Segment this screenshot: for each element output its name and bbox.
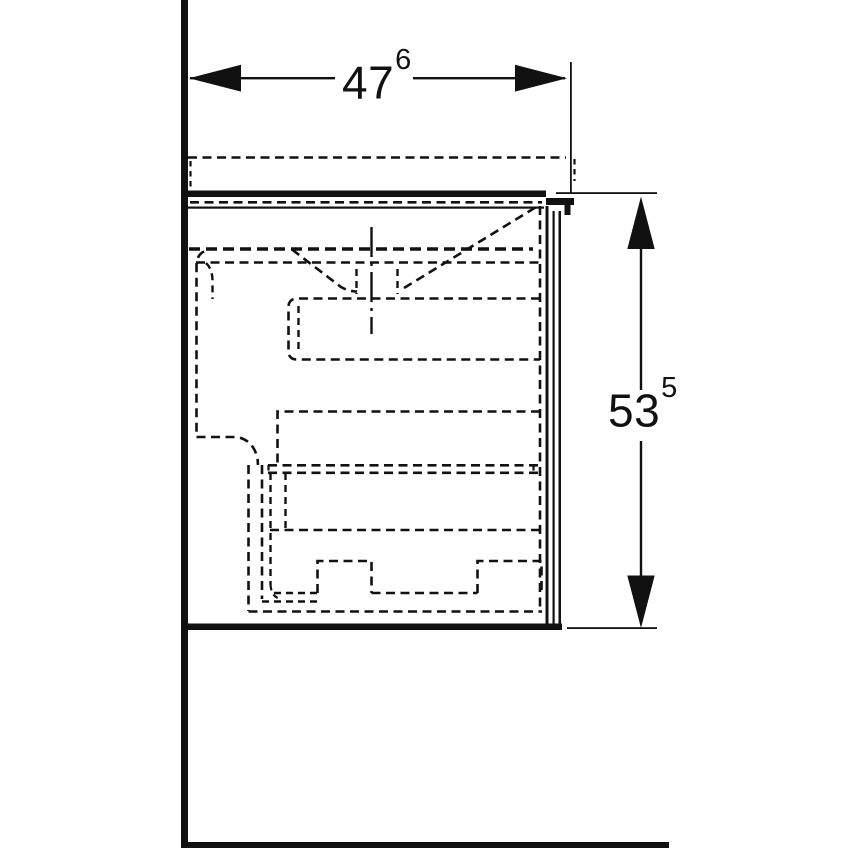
bottom-right-bump-dashed-outline: [478, 561, 542, 593]
front-panel-line-inner: [559, 211, 562, 630]
cabinet-front: [188, 206, 562, 630]
bottom-left-bump-dashed-outline: [318, 561, 372, 593]
room-outline: [181, 0, 669, 848]
basin-front-lip-hook: [565, 205, 571, 215]
arrowhead-down-icon: [627, 576, 654, 629]
height-superscript: 5: [661, 372, 678, 404]
drawer-outlines: [249, 206, 543, 612]
height-extension-line-bottom: [567, 627, 657, 629]
wall-line: [181, 0, 188, 848]
bowl-right-slope-dashed: [404, 207, 537, 289]
floor-line: [181, 842, 669, 848]
arrowhead-left-icon: [189, 65, 241, 92]
front-panel-line-outer: [553, 211, 555, 630]
arrowhead-right-icon: [515, 65, 567, 92]
basin-left-wall-dashed-outline: [197, 252, 259, 466]
bowl-left-slope-dashed: [292, 250, 357, 292]
countertop-slab-line: [188, 191, 546, 198]
upper-drawer-dashed-outline: [278, 412, 541, 466]
carcass-front-line: [546, 206, 549, 630]
basin-front-lip: [546, 198, 574, 205]
washbasin-top: [188, 158, 575, 216]
width-superscript: 6: [395, 44, 412, 76]
cabinet-bottom-line: [188, 624, 562, 631]
height-value: 53: [608, 384, 660, 436]
countertop-underside-line: [188, 207, 544, 209]
technical-drawing-canvas: 476 535: [0, 0, 850, 850]
width-dimension-label: 476: [342, 59, 412, 105]
height-extension-line-top: [556, 192, 657, 194]
arrowhead-up-icon: [627, 197, 654, 250]
width-value: 47: [342, 56, 394, 108]
siphon-outline: [271, 299, 541, 599]
overflow-left-dashed-hook: [206, 263, 213, 299]
basin-bowl-outline: [189, 207, 543, 466]
drain-pipe-elbow-dashed: [271, 585, 281, 599]
height-dimension-label: 535: [608, 387, 678, 433]
siphon-box-dashed-outline: [289, 299, 541, 360]
drawing-svg: [0, 0, 850, 850]
width-extension-line: [570, 62, 572, 194]
